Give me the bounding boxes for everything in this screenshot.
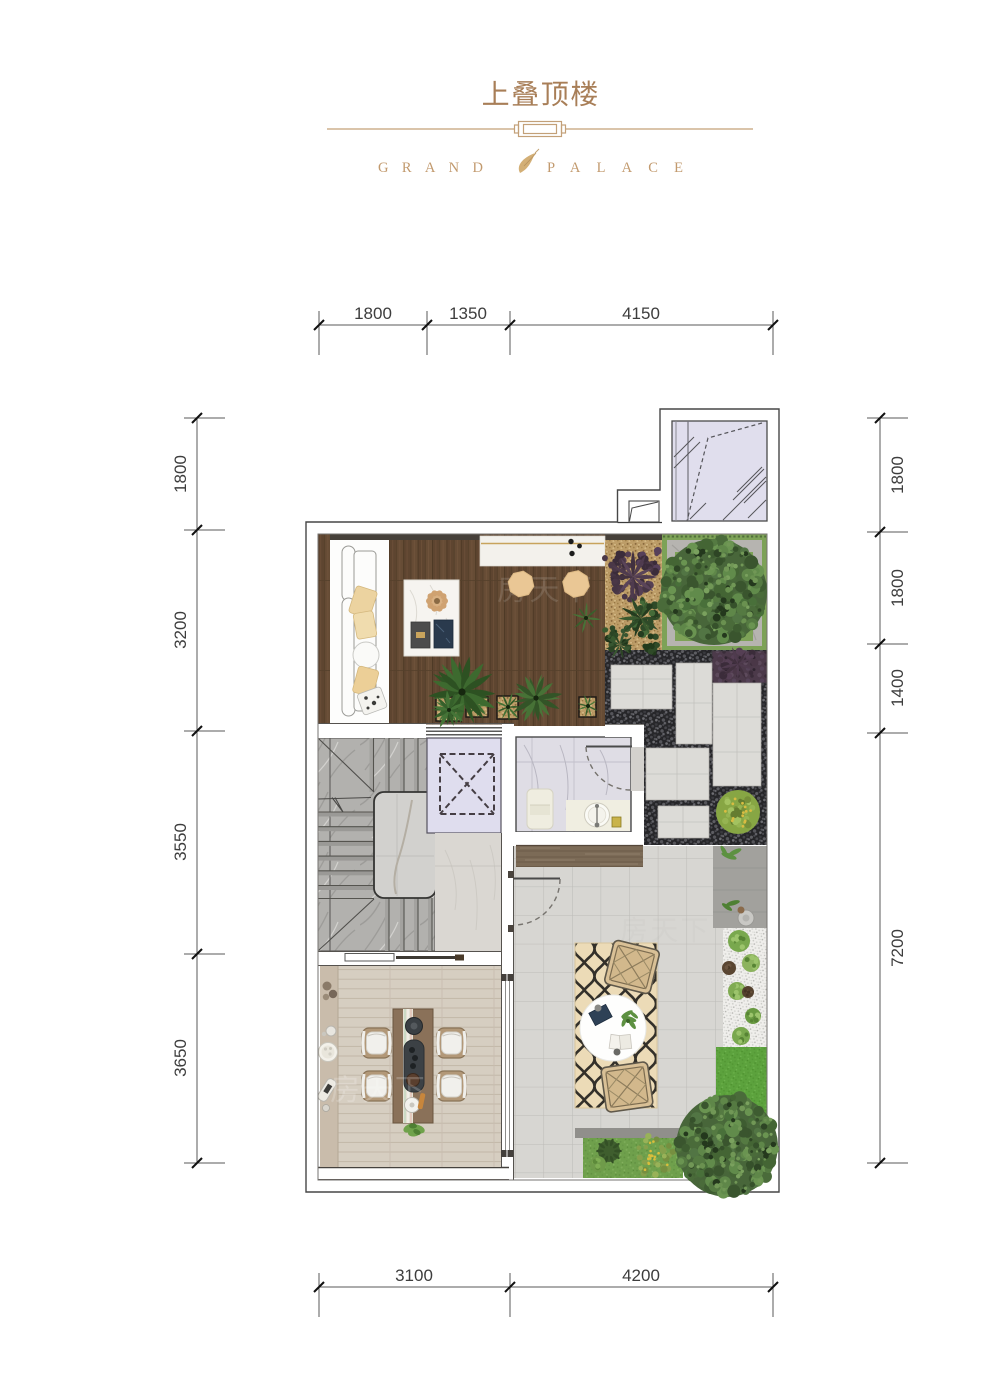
svg-text:1800: 1800 [888, 569, 907, 607]
svg-text:4200: 4200 [622, 1266, 660, 1285]
svg-text:1400: 1400 [888, 669, 907, 707]
svg-text:7200: 7200 [888, 929, 907, 967]
svg-text:1800: 1800 [171, 455, 190, 493]
svg-text:3200: 3200 [171, 611, 190, 649]
svg-text:GRAND: GRAND [378, 160, 504, 176]
svg-text:1350: 1350 [449, 304, 487, 323]
svg-text:1800: 1800 [354, 304, 392, 323]
svg-text:3100: 3100 [395, 1266, 433, 1285]
svg-text:3550: 3550 [171, 823, 190, 861]
svg-text:3650: 3650 [171, 1039, 190, 1077]
svg-text:4150: 4150 [622, 304, 660, 323]
svg-text:PALACE: PALACE [547, 160, 702, 176]
svg-text:1800: 1800 [888, 456, 907, 494]
